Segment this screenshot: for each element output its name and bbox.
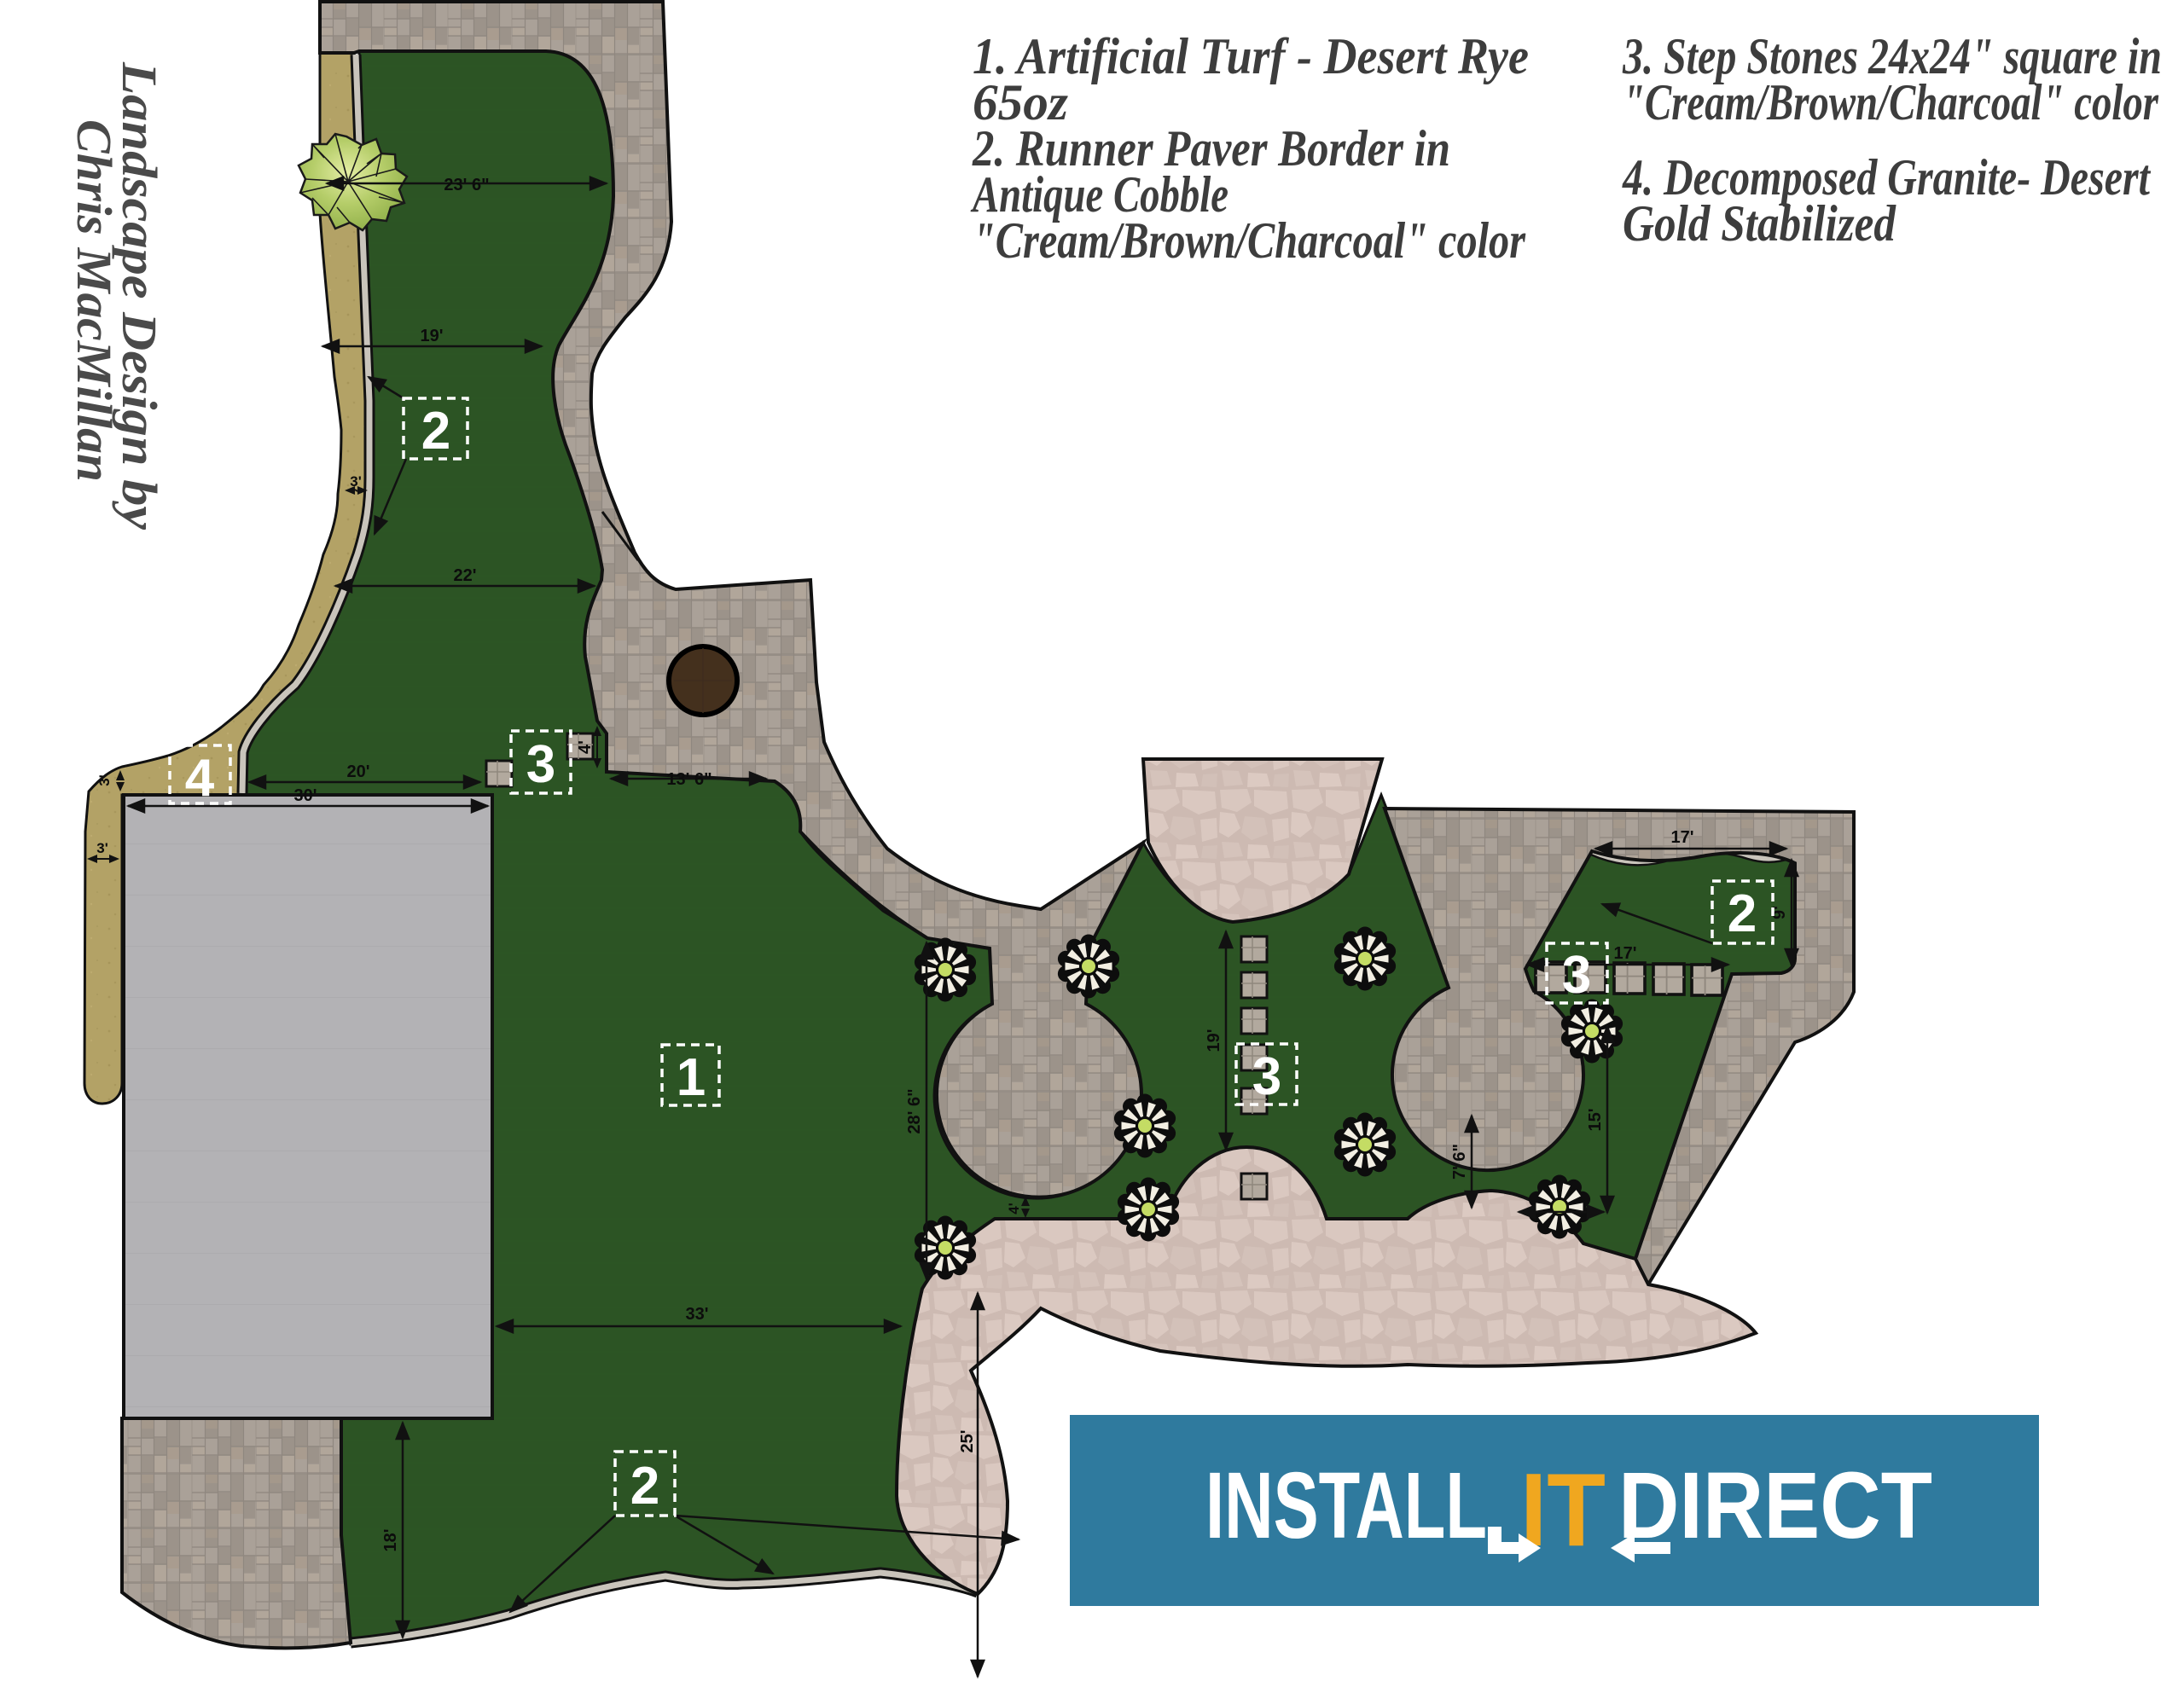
svg-text:18': 18' [381,1528,400,1551]
svg-text:25': 25' [958,1429,977,1452]
svg-text:4: 4 [185,749,215,808]
svg-text:15': 15' [1586,1108,1605,1131]
svg-text:30': 30' [293,786,317,805]
svg-text:"Cream/Brown/Charcoal" color: "Cream/Brown/Charcoal" color [1623,74,2159,130]
svg-text:13' 6": 13' 6" [666,770,712,789]
svg-text:Gold Stabilized: Gold Stabilized [1623,195,1896,252]
svg-text:19': 19' [1205,1029,1223,1052]
svg-text:28' 6": 28' 6" [905,1088,924,1133]
svg-text:3': 3' [96,840,108,856]
svg-text:3': 3' [350,473,362,490]
svg-text:INSTALL: INSTALL [1205,1453,1487,1558]
svg-text:3: 3 [526,735,555,794]
svg-text:17': 17' [1670,828,1693,847]
svg-text:3': 3' [96,774,113,786]
svg-text:7' 6": 7' 6" [1450,1144,1469,1180]
svg-text:1: 1 [677,1048,706,1107]
svg-text:19': 19' [420,327,443,345]
svg-text:17': 17' [1613,944,1636,963]
svg-text:20': 20' [346,762,369,781]
svg-text:3: 3 [1252,1047,1281,1106]
svg-text:2: 2 [630,1457,659,1516]
svg-text:4': 4' [1006,1203,1022,1215]
svg-text:"Cream/Brown/Charcoal" color: "Cream/Brown/Charcoal" color [973,212,1526,269]
svg-text:2: 2 [421,402,450,461]
svg-text:Chris MacMillan: Chris MacMillan [67,119,122,482]
svg-text:33': 33' [685,1305,708,1324]
svg-text:23' 6": 23' 6" [444,176,489,194]
svg-text:2: 2 [1728,884,1757,943]
svg-text:3: 3 [1562,946,1591,1005]
svg-text:22': 22' [453,566,476,585]
svg-text:4': 4' [576,740,595,754]
